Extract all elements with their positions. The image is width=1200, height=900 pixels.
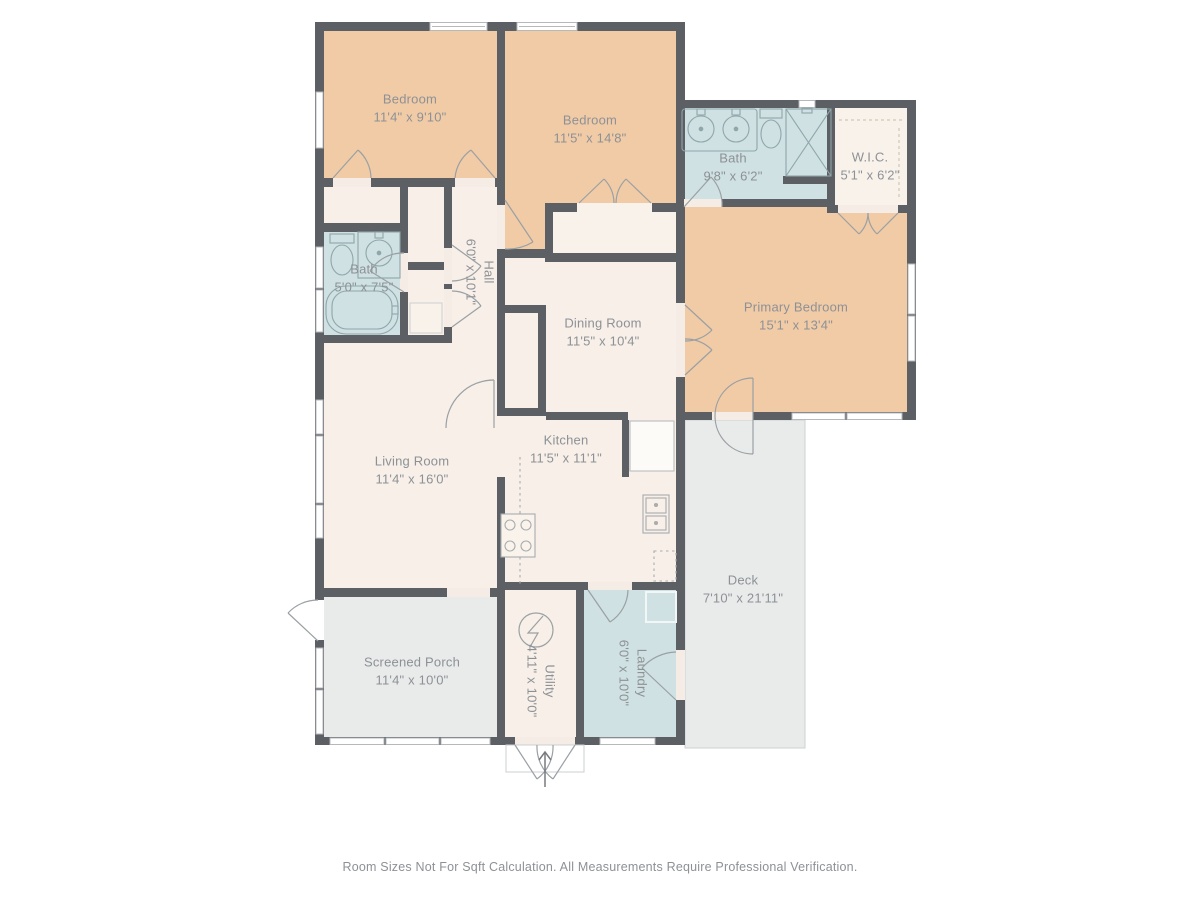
wic-floor	[835, 108, 907, 205]
window	[792, 413, 845, 420]
sink-drain	[655, 522, 658, 525]
wall-segment	[538, 305, 546, 416]
closet-shelf	[410, 303, 442, 333]
wall-segment	[497, 249, 553, 258]
opening	[676, 303, 685, 377]
window	[799, 101, 815, 108]
window	[441, 738, 490, 745]
deck-floor	[685, 420, 805, 748]
opening	[400, 253, 408, 292]
window	[316, 648, 323, 688]
wall-segment	[576, 582, 584, 745]
window	[316, 505, 323, 538]
opening	[444, 248, 452, 284]
wall-segment	[907, 100, 916, 420]
wall-segment	[324, 335, 452, 343]
opening	[676, 650, 685, 700]
window	[600, 738, 655, 745]
sink-drain	[734, 127, 738, 131]
opening	[497, 205, 505, 249]
window	[316, 690, 323, 734]
bedroom2-closet-floor	[553, 212, 676, 253]
bedroom-1-floor	[324, 31, 497, 178]
opening	[333, 178, 371, 187]
wall-segment	[497, 408, 546, 416]
floor-plan-drawing	[0, 0, 1200, 900]
disclaimer-text: Room Sizes Not For Sqft Calculation. All…	[0, 860, 1200, 874]
wall-segment	[546, 412, 628, 420]
window	[316, 290, 323, 332]
floor-plan-canvas: Bedroom 11'4" x 9'10" Bedroom 11'5" x 14…	[0, 0, 1200, 900]
wall-segment	[622, 420, 629, 477]
window	[316, 400, 323, 434]
opening	[712, 412, 753, 420]
sink-drain	[655, 504, 658, 507]
door-arc	[288, 600, 318, 613]
wall-segment	[324, 223, 408, 232]
door-leaf	[288, 613, 318, 641]
window	[316, 92, 323, 148]
wall-segment	[783, 176, 831, 184]
fridge-icon	[630, 421, 674, 471]
opening	[455, 178, 495, 187]
window	[386, 738, 439, 745]
wall-segment	[497, 249, 505, 416]
stove-icon	[501, 514, 535, 557]
window	[316, 436, 323, 503]
opening	[588, 582, 632, 590]
wall-segment	[315, 22, 685, 31]
sink-drain	[377, 251, 381, 255]
floor-areas	[315, 22, 916, 748]
primary-bedroom-floor	[685, 207, 907, 412]
opening	[577, 203, 652, 212]
laundry-floor	[584, 590, 676, 737]
opening	[838, 205, 898, 213]
wall-segment	[676, 100, 916, 108]
opening	[315, 600, 324, 640]
entry-door	[506, 745, 584, 787]
sink-drain	[699, 127, 703, 131]
window	[330, 738, 384, 745]
opening	[515, 737, 575, 745]
opening	[444, 289, 452, 327]
window	[908, 264, 915, 314]
window	[316, 247, 323, 288]
wall-segment	[545, 253, 676, 262]
window	[847, 413, 902, 420]
wall-segment	[408, 262, 444, 270]
porch-floor	[324, 597, 497, 737]
opening	[447, 588, 490, 597]
window	[908, 316, 915, 361]
upper-bath-floor	[684, 108, 827, 200]
